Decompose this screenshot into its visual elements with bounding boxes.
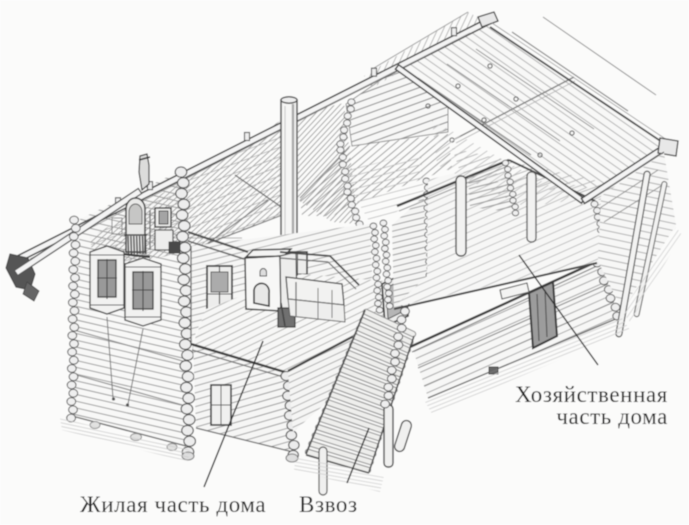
svg-text:Жилая часть дома: Жилая часть дома	[80, 492, 266, 517]
svg-text:Взвоз: Взвоз	[299, 492, 358, 517]
svg-text:часть дома: часть дома	[556, 404, 668, 429]
